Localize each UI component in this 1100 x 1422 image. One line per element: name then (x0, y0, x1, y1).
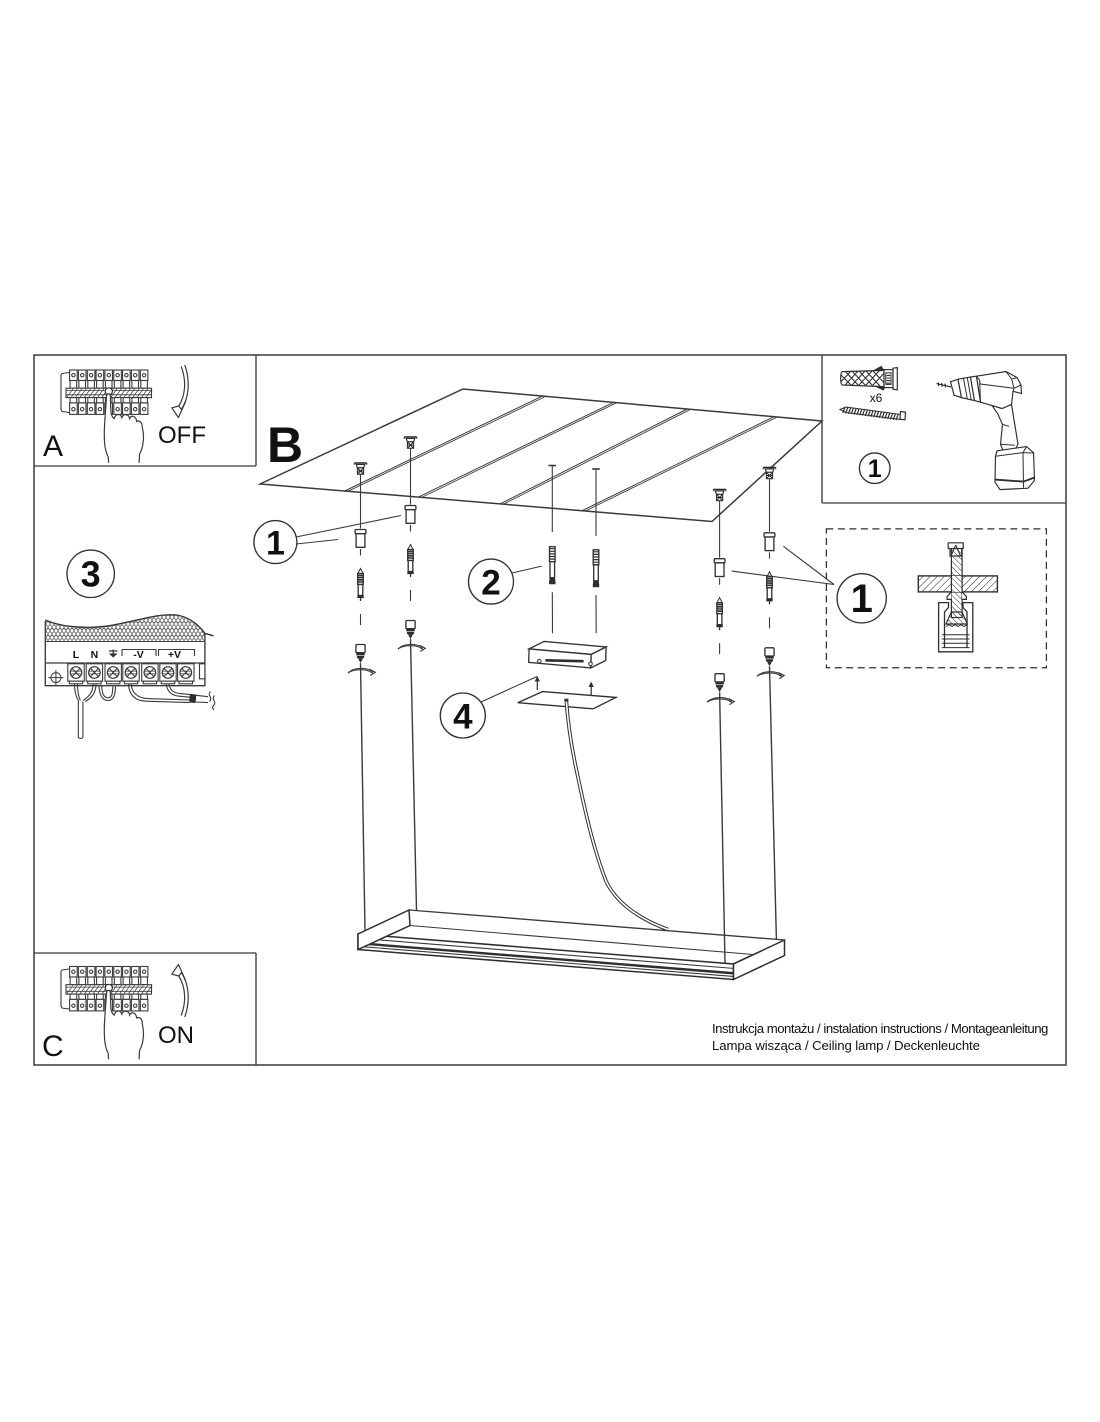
svg-text:1: 1 (266, 525, 285, 563)
svg-text:3: 3 (81, 554, 101, 595)
svg-text:x6: x6 (870, 391, 883, 405)
svg-text:Instrukcja montażu / instalati: Instrukcja montażu / instalation instruc… (712, 1021, 1048, 1036)
svg-text:L: L (73, 649, 80, 661)
svg-text:N: N (91, 649, 99, 661)
svg-text:A: A (43, 430, 63, 463)
svg-text:1: 1 (868, 455, 882, 483)
svg-text:ON: ON (158, 1022, 194, 1049)
svg-text:-V: -V (133, 649, 144, 661)
svg-text:2: 2 (481, 564, 500, 603)
svg-text:C: C (42, 1030, 64, 1063)
svg-text:4: 4 (453, 698, 473, 737)
svg-text:B: B (267, 417, 303, 473)
svg-text:OFF: OFF (158, 422, 206, 449)
svg-text:Lampa wisząca / Ceiling lamp /: Lampa wisząca / Ceiling lamp / Deckenleu… (712, 1038, 980, 1053)
svg-text:+V: +V (168, 649, 181, 661)
svg-text:1: 1 (851, 577, 873, 621)
